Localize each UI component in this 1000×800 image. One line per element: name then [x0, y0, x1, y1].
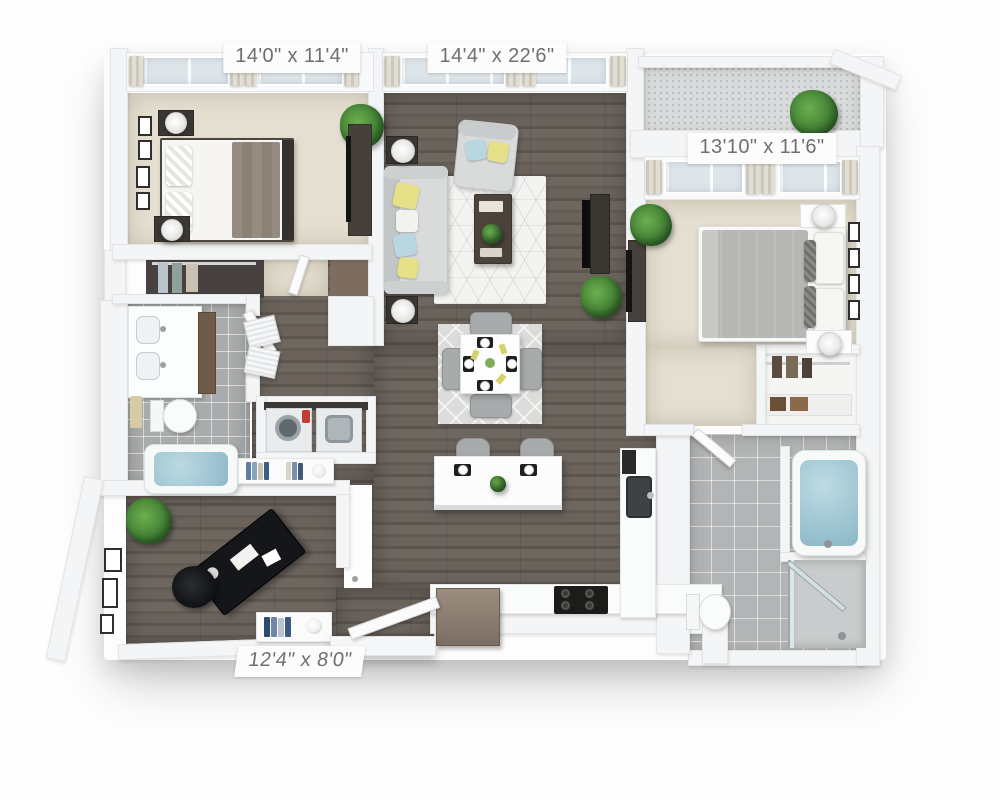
washer-door	[275, 415, 301, 441]
toilet-bowl	[699, 594, 731, 630]
wall-bedroom2-south-west	[644, 424, 694, 436]
bathtub2-water	[800, 460, 858, 546]
desk-paper	[230, 544, 259, 571]
hanging-clothes	[186, 264, 198, 292]
table-lamp	[812, 204, 836, 228]
bedroom1-tv	[346, 136, 351, 222]
coffee-table-books	[479, 201, 503, 212]
potted-plant	[630, 204, 672, 246]
dimension-label-bedroom1: 14'0" x 11'4"	[223, 42, 360, 73]
faucet	[160, 362, 166, 368]
dimension-label-living: 14'4" x 22'6"	[428, 42, 567, 73]
book	[298, 463, 303, 480]
stove-burner	[585, 589, 594, 598]
book	[278, 618, 284, 637]
sofa-pillow-white	[396, 210, 418, 232]
bed1-footboard	[282, 140, 294, 240]
coffee-table-plant	[482, 224, 502, 244]
potted-plant	[126, 498, 172, 544]
wall-tub-alcove-west	[780, 446, 790, 558]
wall-bedroom1-south	[112, 244, 372, 260]
folded-items	[790, 397, 808, 411]
wall-kitchen-bathroom2-divider	[656, 430, 690, 654]
faucet	[160, 326, 166, 332]
hanging-clothes	[172, 263, 182, 293]
table-lamp	[161, 219, 183, 241]
book	[264, 617, 270, 637]
bathtub2-faucet	[824, 540, 832, 548]
plate	[481, 382, 489, 390]
sofa-arm	[384, 166, 448, 179]
book	[258, 463, 263, 480]
flower-vase	[312, 464, 326, 478]
sofa-pillow-yellow	[392, 182, 420, 210]
wall-art	[138, 140, 152, 160]
wall-bedroom2-south-east	[742, 424, 860, 436]
toilet-tank	[686, 594, 700, 630]
desk-paper	[261, 549, 281, 567]
table-lamp	[818, 332, 842, 356]
bedroom2-floor-lower	[644, 346, 758, 426]
wall-bathroom1-north	[112, 294, 260, 304]
towel-bar	[130, 396, 142, 428]
hanging-clothes	[802, 358, 812, 378]
curtain	[610, 56, 626, 86]
hanging-clothes	[786, 356, 798, 378]
shower-head	[838, 632, 846, 640]
wall-closet2-west	[756, 344, 766, 428]
bed2-duvet-fold	[702, 230, 718, 338]
book	[285, 617, 291, 637]
coffee-table-tray	[480, 248, 502, 257]
potted-plant	[580, 276, 622, 318]
bathtub1-water	[154, 452, 228, 486]
folded-items	[770, 397, 786, 411]
centerpiece	[485, 358, 495, 368]
office-chair	[172, 566, 216, 608]
book	[246, 462, 251, 480]
wall-art	[102, 578, 118, 608]
floor-lamp	[391, 299, 415, 323]
bedroom2-tv	[626, 250, 632, 312]
wall-den-west-slanted	[46, 476, 104, 662]
wall-linen-closet-south	[328, 296, 374, 346]
tv	[582, 200, 590, 268]
balcony-plant	[790, 90, 838, 136]
wall-art	[136, 166, 150, 188]
dining-chair	[470, 312, 512, 336]
curtain	[746, 160, 760, 194]
curtain	[646, 160, 662, 194]
shower-glass-side	[788, 560, 794, 648]
bed1-blanket	[232, 142, 280, 238]
armchair-pillow-yellow	[486, 140, 509, 163]
bedroom1-wardrobe	[348, 124, 372, 236]
armchair-pillow-blue	[465, 139, 488, 162]
wall-art	[848, 274, 860, 294]
bed2-pillow	[814, 232, 844, 284]
toilet-tank	[150, 400, 164, 432]
floor-plan-scene: 14'0" x 11'4" 14'4" x 22'6" 13'10" x 11'…	[0, 0, 1000, 800]
island-plant	[490, 476, 506, 492]
wall-bathroom1-west	[100, 300, 128, 488]
floor-lamp	[391, 139, 415, 163]
dining-chair	[470, 394, 512, 418]
wall-art	[848, 248, 860, 268]
dryer-door	[325, 415, 353, 443]
plate	[481, 339, 489, 347]
dimension-label-bedroom2: 13'10" x 11'6"	[688, 133, 837, 164]
curtain	[761, 160, 775, 194]
bedroom2-window	[664, 160, 744, 194]
refrigerator	[436, 588, 500, 646]
plate	[465, 360, 473, 368]
sink-faucet	[647, 492, 654, 499]
hanging-clothes	[772, 356, 782, 378]
sink	[136, 316, 160, 344]
curtain	[384, 56, 400, 86]
stove-burner	[585, 601, 594, 610]
curtain	[842, 160, 858, 194]
stove-burner	[561, 589, 570, 598]
wall-art	[104, 548, 122, 572]
book	[264, 462, 269, 480]
toilet-bowl	[163, 399, 197, 433]
bed2-accent-pillow	[804, 286, 816, 328]
hanging-clothes	[158, 263, 168, 293]
wall-den-east	[336, 494, 350, 568]
entry-door-handle	[352, 576, 358, 582]
book	[271, 617, 277, 637]
flower-vase	[306, 618, 322, 634]
dimension-label-den: 12'4" x 8'0"	[234, 646, 366, 677]
curtain	[129, 56, 144, 86]
wall-art	[138, 116, 152, 136]
book	[292, 462, 297, 480]
book	[286, 462, 291, 480]
wall-art	[100, 614, 114, 634]
stove-burner	[561, 601, 570, 610]
sofa-pillow-blue	[392, 232, 417, 257]
tv-console	[590, 194, 610, 274]
sofa-pillow-yellow	[397, 257, 420, 280]
table-lamp	[165, 112, 187, 134]
wall-art	[848, 300, 860, 320]
plate	[525, 466, 533, 474]
sofa-arm	[384, 281, 448, 294]
sink	[136, 352, 160, 380]
bedroom1-window	[142, 56, 230, 86]
plate	[459, 466, 467, 474]
bed1-pillow	[166, 146, 192, 186]
bed2-accent-pillow	[804, 240, 816, 282]
wall-art	[848, 222, 860, 242]
dining-chair	[518, 348, 542, 390]
vanity-cabinet	[198, 312, 216, 394]
countertop-appliance	[622, 450, 636, 474]
book	[252, 462, 257, 480]
wall-art	[136, 192, 150, 210]
plate	[508, 360, 516, 368]
bedroom2-window	[778, 160, 842, 194]
detergent-bottle	[302, 410, 310, 423]
